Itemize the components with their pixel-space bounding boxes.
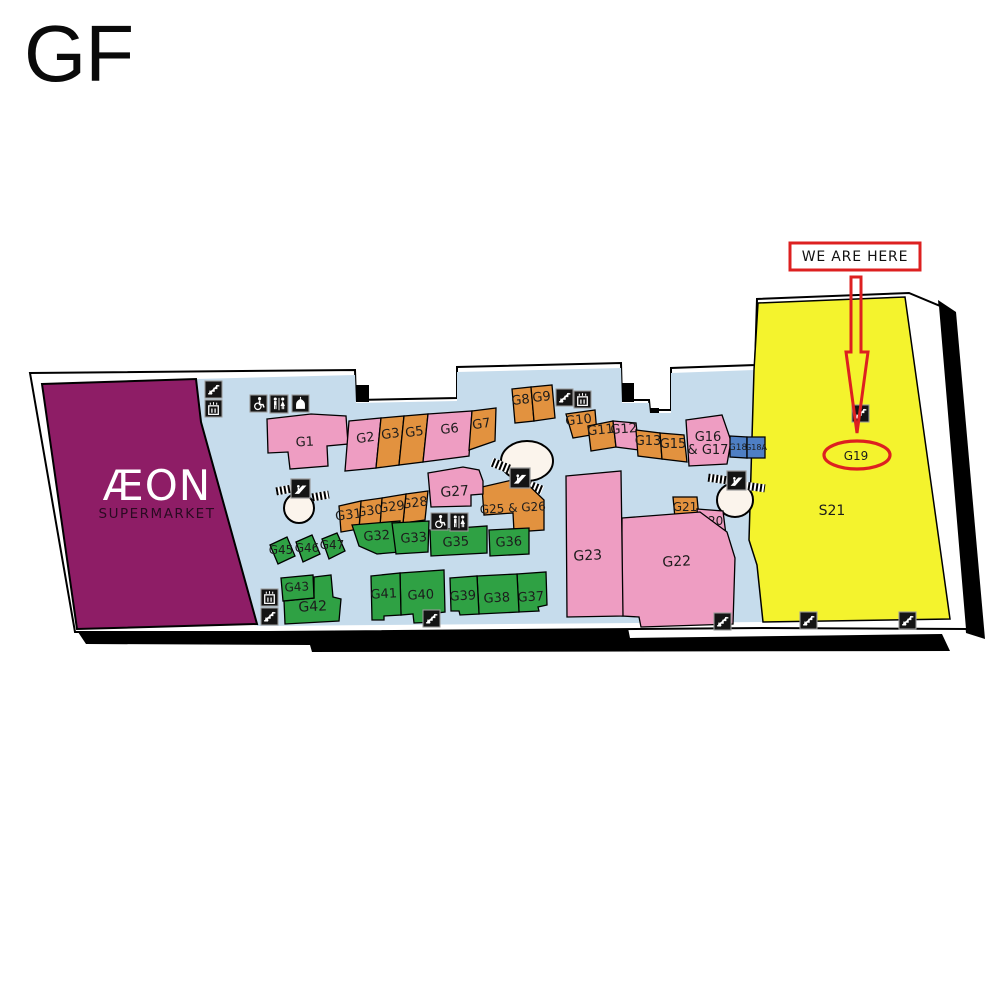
shop-G22-label: G22 (662, 553, 691, 570)
shop-G39: G39 (449, 576, 479, 615)
shop-G33: G33 (392, 521, 429, 554)
shop-G40-label: G40 (407, 587, 434, 603)
shop-G23-shape (566, 471, 623, 617)
shop-G15: G15 (660, 433, 687, 462)
shop-G23: G23 (566, 471, 623, 617)
stairs-icon (556, 389, 573, 406)
structural-pillar (356, 385, 369, 402)
shop-G16G17: G16& G17 (686, 415, 731, 466)
toilets-icon (450, 513, 468, 531)
shop-G3-label: G3 (380, 426, 400, 443)
shop-G22: G22 (622, 512, 735, 627)
shop-G2: G2 (345, 418, 381, 471)
shop-G6-label: G6 (440, 421, 460, 438)
lift-icon (574, 391, 591, 408)
structural-pillar (621, 383, 634, 402)
toilets-icon (270, 395, 288, 413)
shop-G43: G43 (281, 575, 314, 601)
we-are-here-label: WE ARE HERE (802, 249, 909, 265)
stairs-icon (714, 613, 731, 630)
shop-G38-label: G38 (483, 590, 510, 606)
aeon-supermarket-label: SUPERMARKET (99, 506, 216, 522)
shop-G6: G6 (423, 411, 472, 462)
shop-G32-label: G32 (363, 528, 391, 545)
shop-G18A-label: G18A (745, 443, 767, 452)
lift-icon (261, 589, 278, 606)
shop-G13: G13 (635, 430, 662, 459)
escalator-icon (291, 479, 310, 498)
shop-G8: G8 (511, 387, 534, 423)
shop-G38: G38 (477, 574, 519, 614)
shop-G13-label: G13 (635, 434, 662, 449)
shop-G9: G9 (531, 385, 555, 421)
prayer-room-icon (292, 395, 309, 412)
shop-G7-label: G7 (471, 416, 491, 433)
shop-G8-label: G8 (511, 392, 531, 409)
shop-G42-label: G42 (298, 598, 327, 615)
wheelchair-icon (250, 395, 267, 412)
shop-G35-label: G35 (442, 534, 469, 550)
shop-G47-label: G47 (320, 538, 345, 552)
shop-G46-label: G46 (295, 541, 320, 555)
area-label-S21: S21 (819, 503, 846, 519)
shop-G41-label: G41 (370, 586, 397, 602)
shop-G15-label: G15 (660, 437, 687, 452)
shop-G37: G37 (517, 572, 547, 612)
shop-G45-label: G45 (269, 543, 294, 557)
shop-G2-label: G2 (355, 430, 375, 447)
shop-G18A: G18A (745, 437, 767, 458)
shop-G36-label: G36 (495, 534, 522, 550)
aeon-logo: ÆON (103, 461, 211, 510)
shop-G9-label: G9 (532, 389, 552, 406)
shop-G12-label: G12 (610, 421, 638, 438)
escalator-icon (727, 471, 746, 490)
shop-G43-label: G43 (284, 579, 309, 594)
shop-G37-label: G37 (517, 589, 544, 605)
area-label-G19: G19 (844, 449, 869, 463)
shop-G1-label: G1 (295, 435, 314, 451)
shop-G39-label: G39 (449, 588, 476, 604)
wheelchair-icon (431, 513, 448, 530)
shop-G36: G36 (489, 528, 529, 556)
shop-G41: G41 (370, 573, 401, 620)
stairs-icon (261, 608, 278, 625)
shop-G33-label: G33 (400, 530, 428, 547)
stairs-icon (205, 381, 222, 398)
lift-icon (205, 400, 222, 417)
shop-G27-label: G27 (440, 483, 470, 501)
escalator-icon (510, 468, 530, 488)
stairs-icon (899, 612, 916, 629)
mall-floor-map: ÆONSUPERMARKETS21G19G1G2G3G5G6G7G8G9G10G… (0, 0, 1001, 1001)
shop-G5-label: G5 (404, 424, 424, 441)
stairs-icon (423, 610, 440, 627)
stairs-icon (800, 612, 817, 629)
shop-G23-label: G23 (573, 547, 602, 564)
